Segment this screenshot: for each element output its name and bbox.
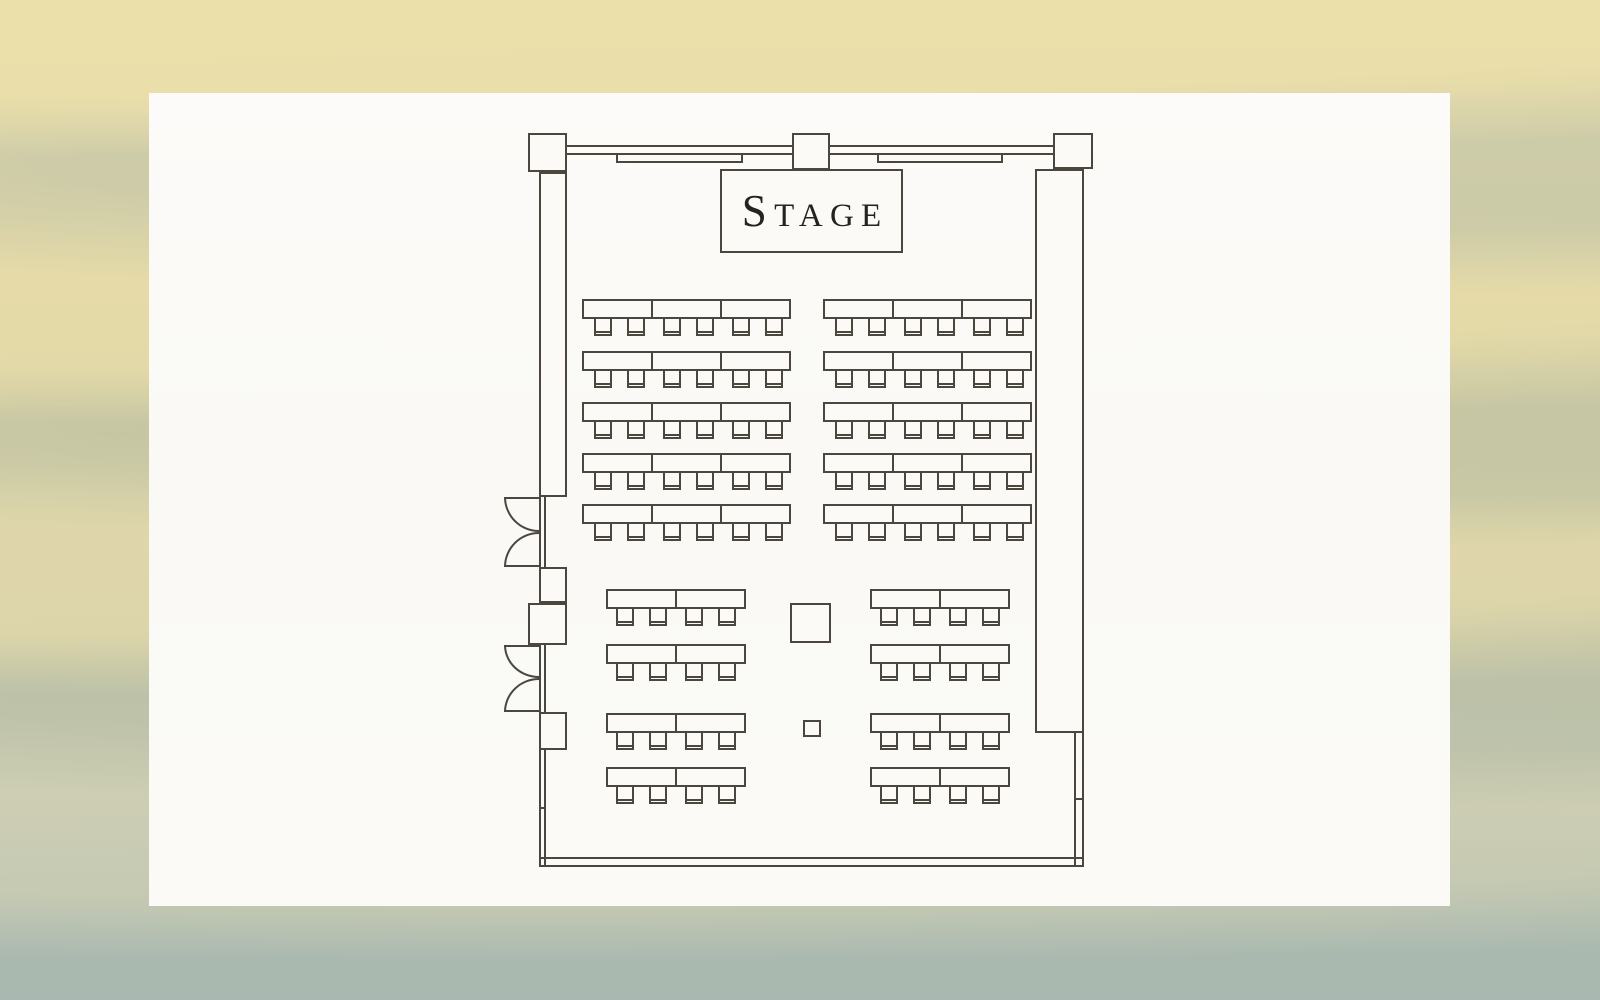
chair (1006, 524, 1024, 541)
door-arc-upper-bottom-leaf (504, 532, 539, 567)
column-top-left (528, 133, 567, 172)
chair (982, 733, 1000, 750)
chair (616, 787, 634, 804)
chair (913, 787, 931, 804)
table (892, 504, 963, 524)
chair (835, 371, 853, 388)
chair (904, 524, 922, 541)
wall-block-between-doors-1 (539, 567, 567, 603)
door-arc-upper-top-leaf (504, 497, 539, 532)
table (961, 453, 1032, 473)
table (582, 351, 653, 371)
chair (868, 319, 886, 336)
chair (663, 524, 681, 541)
chair (868, 422, 886, 439)
table (675, 713, 746, 733)
wall-bottom (539, 857, 1084, 867)
chair (594, 422, 612, 439)
chair (982, 664, 1000, 681)
chair (732, 524, 750, 541)
chair (696, 371, 714, 388)
stage-recess-panel-left (616, 153, 743, 163)
chair (732, 319, 750, 336)
chair (718, 787, 736, 804)
table (892, 402, 963, 422)
stage-box: STAGE (720, 169, 903, 253)
chair (835, 319, 853, 336)
chair (1006, 473, 1024, 490)
chair (649, 664, 667, 681)
chair (649, 609, 667, 626)
chair (663, 473, 681, 490)
chair (880, 787, 898, 804)
table (651, 504, 722, 524)
table (892, 351, 963, 371)
pillar-right (1035, 169, 1084, 733)
chair (949, 664, 967, 681)
chair (765, 371, 783, 388)
table (582, 504, 653, 524)
table (606, 644, 677, 664)
chair (718, 664, 736, 681)
chair (616, 733, 634, 750)
table (651, 402, 722, 422)
chair (835, 524, 853, 541)
chair (663, 371, 681, 388)
chair (627, 371, 645, 388)
table (606, 589, 677, 609)
table (870, 767, 941, 787)
chair (627, 422, 645, 439)
chair (937, 319, 955, 336)
chair (696, 319, 714, 336)
chair (594, 473, 612, 490)
table (870, 589, 941, 609)
table (720, 453, 791, 473)
chair (718, 733, 736, 750)
chair (835, 422, 853, 439)
table (720, 351, 791, 371)
chair (904, 371, 922, 388)
table (720, 402, 791, 422)
chair (1006, 422, 1024, 439)
table (939, 589, 1010, 609)
chair (937, 524, 955, 541)
chair (732, 371, 750, 388)
chair (765, 473, 783, 490)
chair (627, 524, 645, 541)
chair (765, 319, 783, 336)
wall-joint-tick-left (539, 807, 546, 809)
table (720, 299, 791, 319)
chair (982, 609, 1000, 626)
chair (868, 524, 886, 541)
chair (904, 319, 922, 336)
chair (616, 664, 634, 681)
chair (937, 371, 955, 388)
table (582, 453, 653, 473)
floor-object-square-small (803, 720, 821, 737)
chair (913, 609, 931, 626)
chair (973, 319, 991, 336)
table (961, 299, 1032, 319)
wall-left-upper (539, 172, 567, 497)
chair (913, 664, 931, 681)
chair (685, 664, 703, 681)
table (939, 644, 1010, 664)
chair (732, 473, 750, 490)
chair (904, 422, 922, 439)
table (939, 767, 1010, 787)
chair (685, 609, 703, 626)
chair (663, 319, 681, 336)
chair (880, 609, 898, 626)
table (675, 644, 746, 664)
table (582, 299, 653, 319)
table (651, 453, 722, 473)
floor-plan: STAGE (0, 0, 1600, 1000)
stage-recess-panel-right (877, 153, 1003, 163)
table (892, 453, 963, 473)
table (870, 713, 941, 733)
chair (973, 473, 991, 490)
chair (696, 524, 714, 541)
chair (913, 733, 931, 750)
table (651, 299, 722, 319)
chair (904, 473, 922, 490)
chair (973, 524, 991, 541)
chair (949, 787, 967, 804)
table (582, 402, 653, 422)
chair (732, 422, 750, 439)
table (823, 402, 894, 422)
chair (973, 371, 991, 388)
door-arc-lower-top-leaf (504, 645, 539, 678)
stage-label: STAGE (722, 171, 901, 256)
chair (696, 422, 714, 439)
table (606, 713, 677, 733)
wall-block-between-doors-2 (539, 712, 567, 750)
table (606, 767, 677, 787)
chair (616, 609, 634, 626)
chair (973, 422, 991, 439)
chair (627, 319, 645, 336)
chair (663, 422, 681, 439)
table (675, 767, 746, 787)
wall-pier-mid-left (528, 603, 567, 645)
chair (835, 473, 853, 490)
chair (649, 787, 667, 804)
chair (685, 787, 703, 804)
chair (949, 733, 967, 750)
table (961, 402, 1032, 422)
chair (949, 609, 967, 626)
chair (594, 371, 612, 388)
table (675, 589, 746, 609)
floor-object-square-large (790, 603, 831, 643)
chair (594, 319, 612, 336)
chair (718, 609, 736, 626)
chair (649, 733, 667, 750)
chair (685, 733, 703, 750)
table (823, 453, 894, 473)
wall-left-lower (539, 497, 546, 866)
chair (937, 473, 955, 490)
table (892, 299, 963, 319)
chair (1006, 319, 1024, 336)
chair (868, 473, 886, 490)
chair (1006, 371, 1024, 388)
table (939, 713, 1010, 733)
chair (594, 524, 612, 541)
column-center (792, 133, 830, 170)
chair (696, 473, 714, 490)
column-top-right (1053, 133, 1093, 169)
table (961, 504, 1032, 524)
table (823, 299, 894, 319)
chair (627, 473, 645, 490)
chair (880, 664, 898, 681)
chair (765, 524, 783, 541)
chair (868, 371, 886, 388)
table (961, 351, 1032, 371)
chair (765, 422, 783, 439)
table (651, 351, 722, 371)
table (870, 644, 941, 664)
table (720, 504, 791, 524)
table (823, 504, 894, 524)
table (823, 351, 894, 371)
door-arc-lower-bottom-leaf (504, 678, 539, 712)
chair (880, 733, 898, 750)
chair (937, 422, 955, 439)
chair (982, 787, 1000, 804)
wall-joint-tick-right (1074, 798, 1084, 800)
